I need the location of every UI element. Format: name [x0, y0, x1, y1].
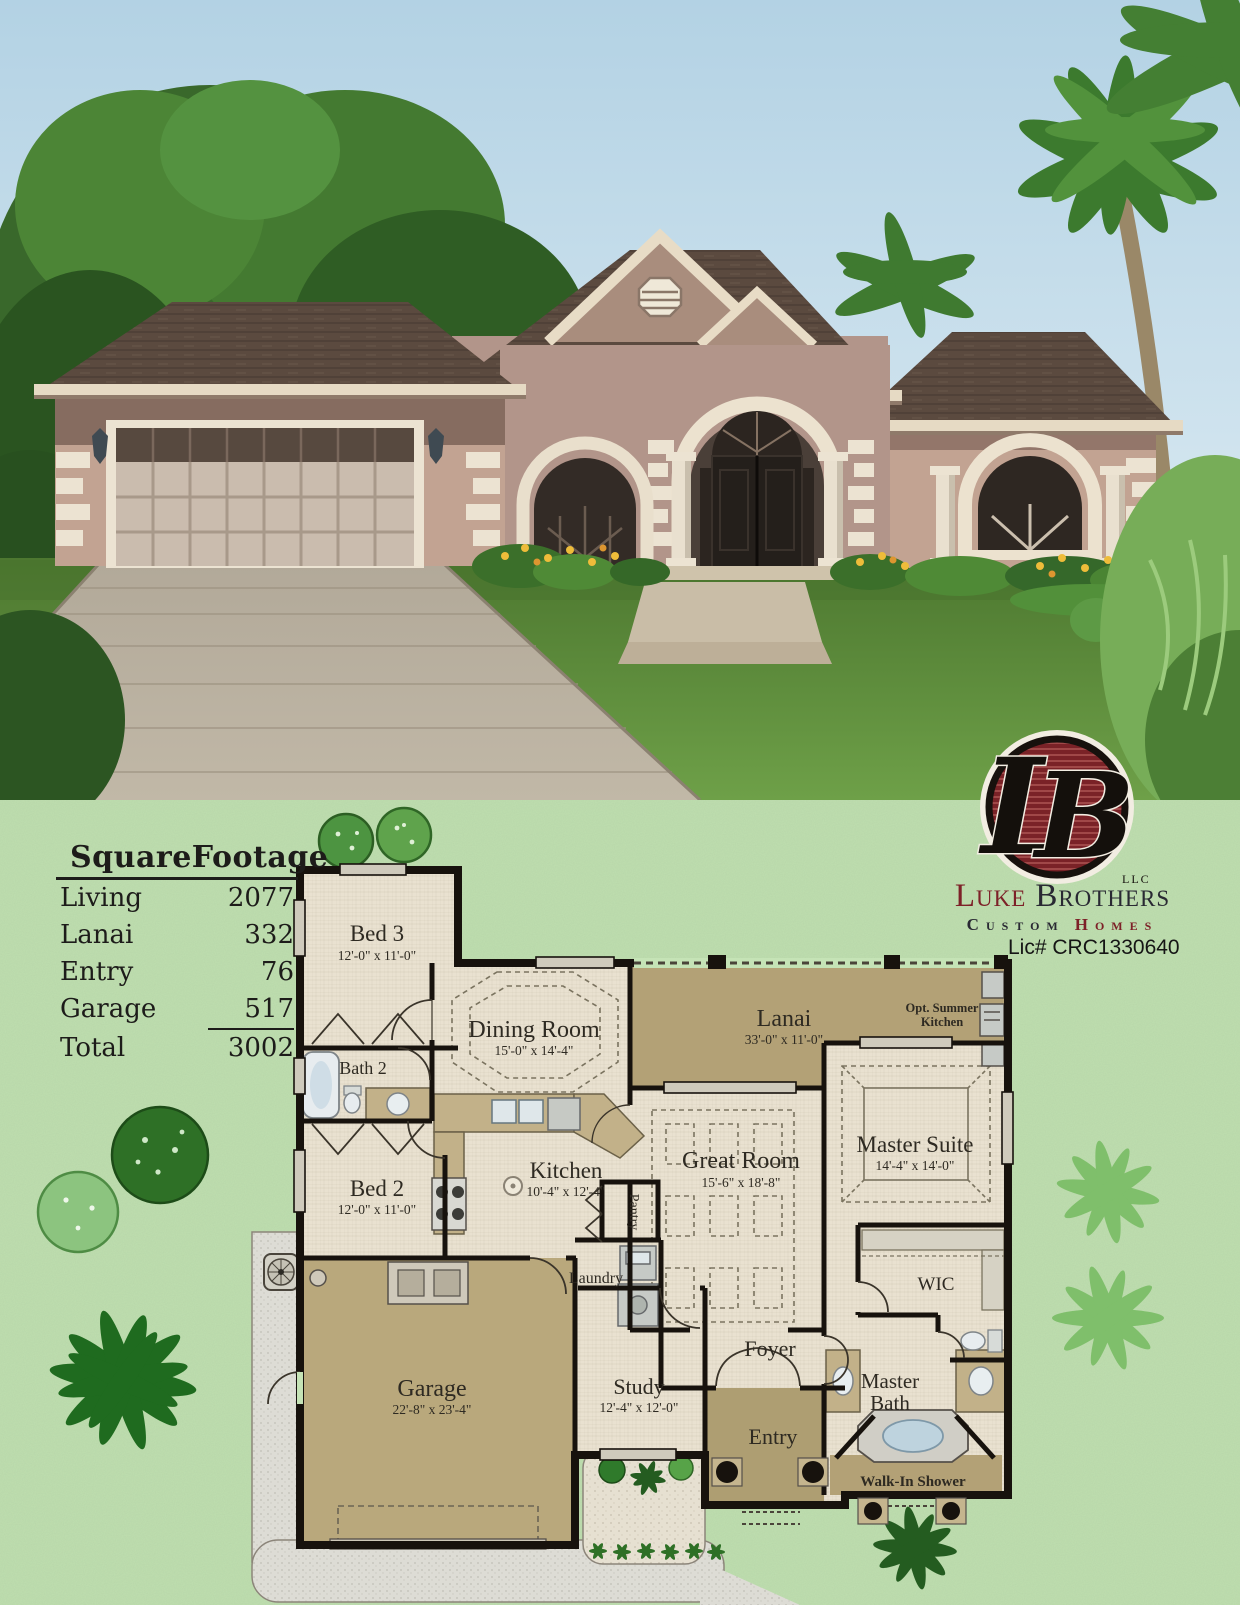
- label-wic: WIC: [918, 1274, 955, 1295]
- label-pantry: Pantry: [626, 1194, 641, 1231]
- brand-word-luke: Luke: [955, 878, 1026, 914]
- label-master-bath-2: Bath: [870, 1391, 910, 1415]
- sqft-value: 76: [208, 954, 294, 991]
- label-summer-kitchen-2: Kitchen: [921, 1015, 963, 1029]
- entry-walkway: [618, 582, 832, 664]
- sqft-row-lanai: Lanai 332: [56, 917, 298, 954]
- brand-tagline: CustomHomes: [925, 915, 1200, 935]
- label-garage: Garage: [397, 1376, 466, 1402]
- sqft-label: Lanai: [60, 917, 133, 954]
- label-bed3: Bed 3: [350, 921, 404, 946]
- shrub-light-left: [38, 1172, 118, 1252]
- label-bed2-dims: 12'-0" x 11'-0": [338, 1202, 416, 1217]
- sqft-row-entry: Entry 76: [56, 954, 298, 991]
- square-footage-table: SquareFootage Living 2077 Lanai 332 Entr…: [56, 840, 298, 1067]
- square-footage-title: SquareFootage: [56, 840, 298, 880]
- label-entry: Entry: [749, 1424, 798, 1449]
- sqft-row-total: Total 3002: [56, 1030, 298, 1067]
- label-lanai: Lanai: [757, 1006, 812, 1032]
- luke-brothers-logo: L B LLC: [950, 715, 1180, 900]
- sqft-label: Entry: [60, 954, 133, 991]
- porch-slab: [640, 566, 852, 580]
- label-bed3-dims: 12'-0" x 11'-0": [338, 948, 416, 963]
- monogram-b: B: [1032, 746, 1135, 885]
- label-kitchen: Kitchen: [530, 1158, 603, 1183]
- label-master-suite: Master Suite: [857, 1132, 974, 1157]
- label-study-dims: 12'-4" x 12'-0": [600, 1400, 679, 1415]
- label-laundry: Laundry: [569, 1270, 623, 1287]
- sqft-label: Living: [60, 880, 142, 917]
- floor-plan: Bed 3 12'-0" x 11'-0" Bath 2 Bed 2 12'-0…: [268, 864, 1013, 1549]
- sqft-row-living: Living 2077: [56, 880, 298, 917]
- label-bed2: Bed 2: [350, 1176, 404, 1201]
- sqft-value: 3002: [208, 1030, 294, 1067]
- label-dining: Dining Room: [468, 1017, 600, 1043]
- flyer-page: Bed 3 12'-0" x 11'-0" Bath 2 Bed 2 12'-0…: [0, 0, 1240, 1605]
- octagon-vent: [639, 278, 681, 316]
- tagline-word-homes: Homes: [1075, 915, 1159, 934]
- license-number: Lic# CRC1330640: [1008, 936, 1180, 960]
- label-bath2: Bath 2: [339, 1058, 387, 1078]
- sqft-value: 332: [208, 917, 294, 954]
- shrub-dark-left: [112, 1107, 208, 1203]
- label-walk-in-shower: Walk-In Shower: [860, 1474, 966, 1490]
- label-great-room: Great Room: [682, 1148, 800, 1174]
- label-kitchen-dims: 10'-4" x 12'-4": [527, 1184, 606, 1199]
- label-lanai-dims: 33'-0" x 11'-0": [745, 1032, 823, 1047]
- summer-kitchen-appliances: [980, 972, 1004, 1066]
- garage-door: [106, 420, 424, 568]
- label-foyer: Foyer: [744, 1336, 796, 1361]
- ac-unit-icon: [264, 1254, 298, 1290]
- label-garage-dims: 22'-8" x 23'-4": [393, 1402, 472, 1417]
- sqft-label: Total: [60, 1030, 125, 1067]
- stove-icon: [432, 1178, 466, 1230]
- sqft-row-garage: Garage 517: [56, 991, 298, 1030]
- brand-wordmark: LukeBrothers: [925, 880, 1200, 912]
- label-dining-dims: 15'-0" x 14'-4": [495, 1043, 574, 1058]
- sqft-value: 517: [208, 991, 294, 1030]
- brand-word-brothers: Brothers: [1035, 878, 1170, 914]
- label-study: Study: [613, 1374, 664, 1399]
- label-great-room-dims: 15'-6" x 18'-8": [702, 1175, 781, 1190]
- label-master-suite-dims: 14'-4" x 14'-0": [876, 1158, 955, 1173]
- label-master-bath-1: Master: [861, 1369, 919, 1393]
- label-summer-kitchen-1: Opt. Summer: [906, 1001, 979, 1015]
- house-rendering: [0, 0, 1240, 800]
- sqft-value: 2077: [208, 880, 294, 917]
- tagline-word-custom: Custom: [967, 915, 1065, 934]
- sqft-label: Garage: [60, 991, 156, 1030]
